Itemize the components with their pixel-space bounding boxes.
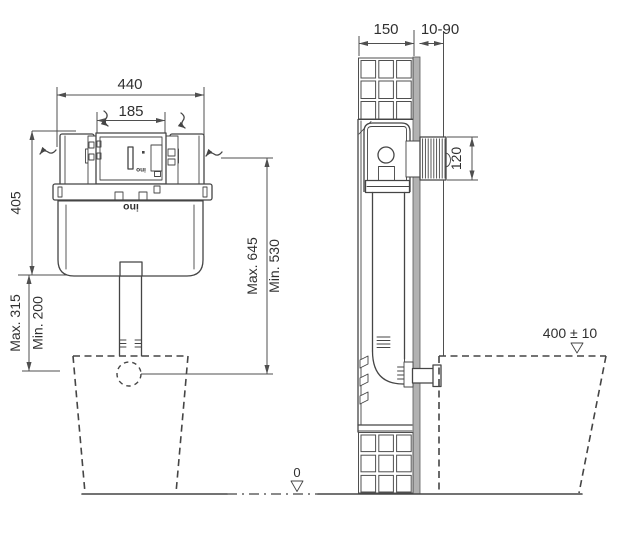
outlet-coupling xyxy=(404,362,413,387)
access-box: ino xyxy=(96,133,166,184)
installation-drawing: 440 185 405 Max. 315 Min. 200 xyxy=(0,0,618,535)
tile xyxy=(397,435,412,452)
water-inlet-circle xyxy=(117,362,141,386)
brand-label: ino xyxy=(123,201,139,213)
tile xyxy=(379,435,394,452)
level-label-floor: 0 xyxy=(293,465,300,480)
pipe-outlet xyxy=(120,262,142,276)
dim-label-overall-min: Min. 530 xyxy=(266,239,282,293)
dim-label-overall-max: Max. 645 xyxy=(244,237,260,295)
bowl-outline xyxy=(176,356,188,493)
tile xyxy=(397,102,412,120)
fill-valve-body xyxy=(379,167,395,181)
tile xyxy=(361,475,376,492)
front-view: 440 185 405 Max. 315 Min. 200 xyxy=(7,76,318,494)
cut-marks xyxy=(120,340,142,347)
dim-label-access-width: 185 xyxy=(118,103,143,120)
level-datum-icon xyxy=(291,481,303,492)
flush-plate-protection-box xyxy=(420,137,451,180)
level-label-bowl-rim: 400 ± 10 xyxy=(543,325,598,341)
dim-label-outlet-min: Min. 200 xyxy=(30,296,46,350)
tile xyxy=(379,475,394,492)
tile xyxy=(397,475,412,492)
level-bowl-rim: 400 ± 10 xyxy=(543,325,598,353)
wavy-arrow-down-right-icon xyxy=(181,113,185,128)
dim-label-frame-width: 440 xyxy=(117,76,142,93)
coupling-ribs xyxy=(398,367,405,379)
tile xyxy=(397,61,412,79)
dim-frame-depth: 150 xyxy=(359,21,414,56)
tile xyxy=(397,455,412,472)
dim-wall-finish-range: 10-90 xyxy=(420,21,460,137)
dim-plate-height: 120 xyxy=(447,137,478,180)
tile xyxy=(361,435,376,452)
side-plate-right xyxy=(166,136,178,185)
tile xyxy=(379,455,394,472)
dim-access-width: 185 xyxy=(97,103,165,134)
technical-drawing: 440 185 405 Max. 315 Min. 200 xyxy=(0,0,618,535)
tile xyxy=(361,81,376,99)
tile xyxy=(361,61,376,79)
cut-marks xyxy=(377,337,390,348)
flush-pipe-front xyxy=(120,262,143,356)
level-datum-icon xyxy=(571,343,583,353)
mounting-plate xyxy=(53,184,212,200)
tile xyxy=(397,81,412,99)
tile xyxy=(361,102,376,120)
fixing-dot xyxy=(142,151,145,154)
mounting-plate-outline xyxy=(53,184,212,200)
dim-label-outlet-max: Max. 315 xyxy=(7,294,23,352)
wall-lining xyxy=(413,57,420,494)
side-plate-left xyxy=(88,136,96,185)
bowl-outline xyxy=(73,356,85,493)
outlet-stub xyxy=(413,369,434,384)
toilet-bowl-front xyxy=(73,356,318,494)
fill-valve-float xyxy=(378,147,394,163)
tile xyxy=(379,81,394,99)
bowl-outline xyxy=(579,356,606,493)
wavy-arrow-down-left-icon xyxy=(104,111,108,126)
wavy-arrow-left-icon xyxy=(40,150,56,154)
brand-label-small: ino xyxy=(136,166,146,173)
side-view: 150 10-90 xyxy=(291,21,606,494)
tile xyxy=(379,61,394,79)
level-floor-datum: 0 xyxy=(291,465,303,492)
dim-label-wall-finish: 10-90 xyxy=(421,21,459,38)
tile xyxy=(361,455,376,472)
flush-plate-shaft xyxy=(406,141,420,177)
dim-label-frame-depth: 150 xyxy=(373,21,398,38)
wavy-arrow-right-icon xyxy=(206,152,222,156)
dim-outlet-height: Max. 315 Min. 200 xyxy=(7,275,78,371)
tile xyxy=(379,102,394,120)
cistern-side xyxy=(359,122,413,405)
dim-label-plate-height: 120 xyxy=(448,147,464,171)
dim-label-frame-height: 405 xyxy=(8,191,24,215)
